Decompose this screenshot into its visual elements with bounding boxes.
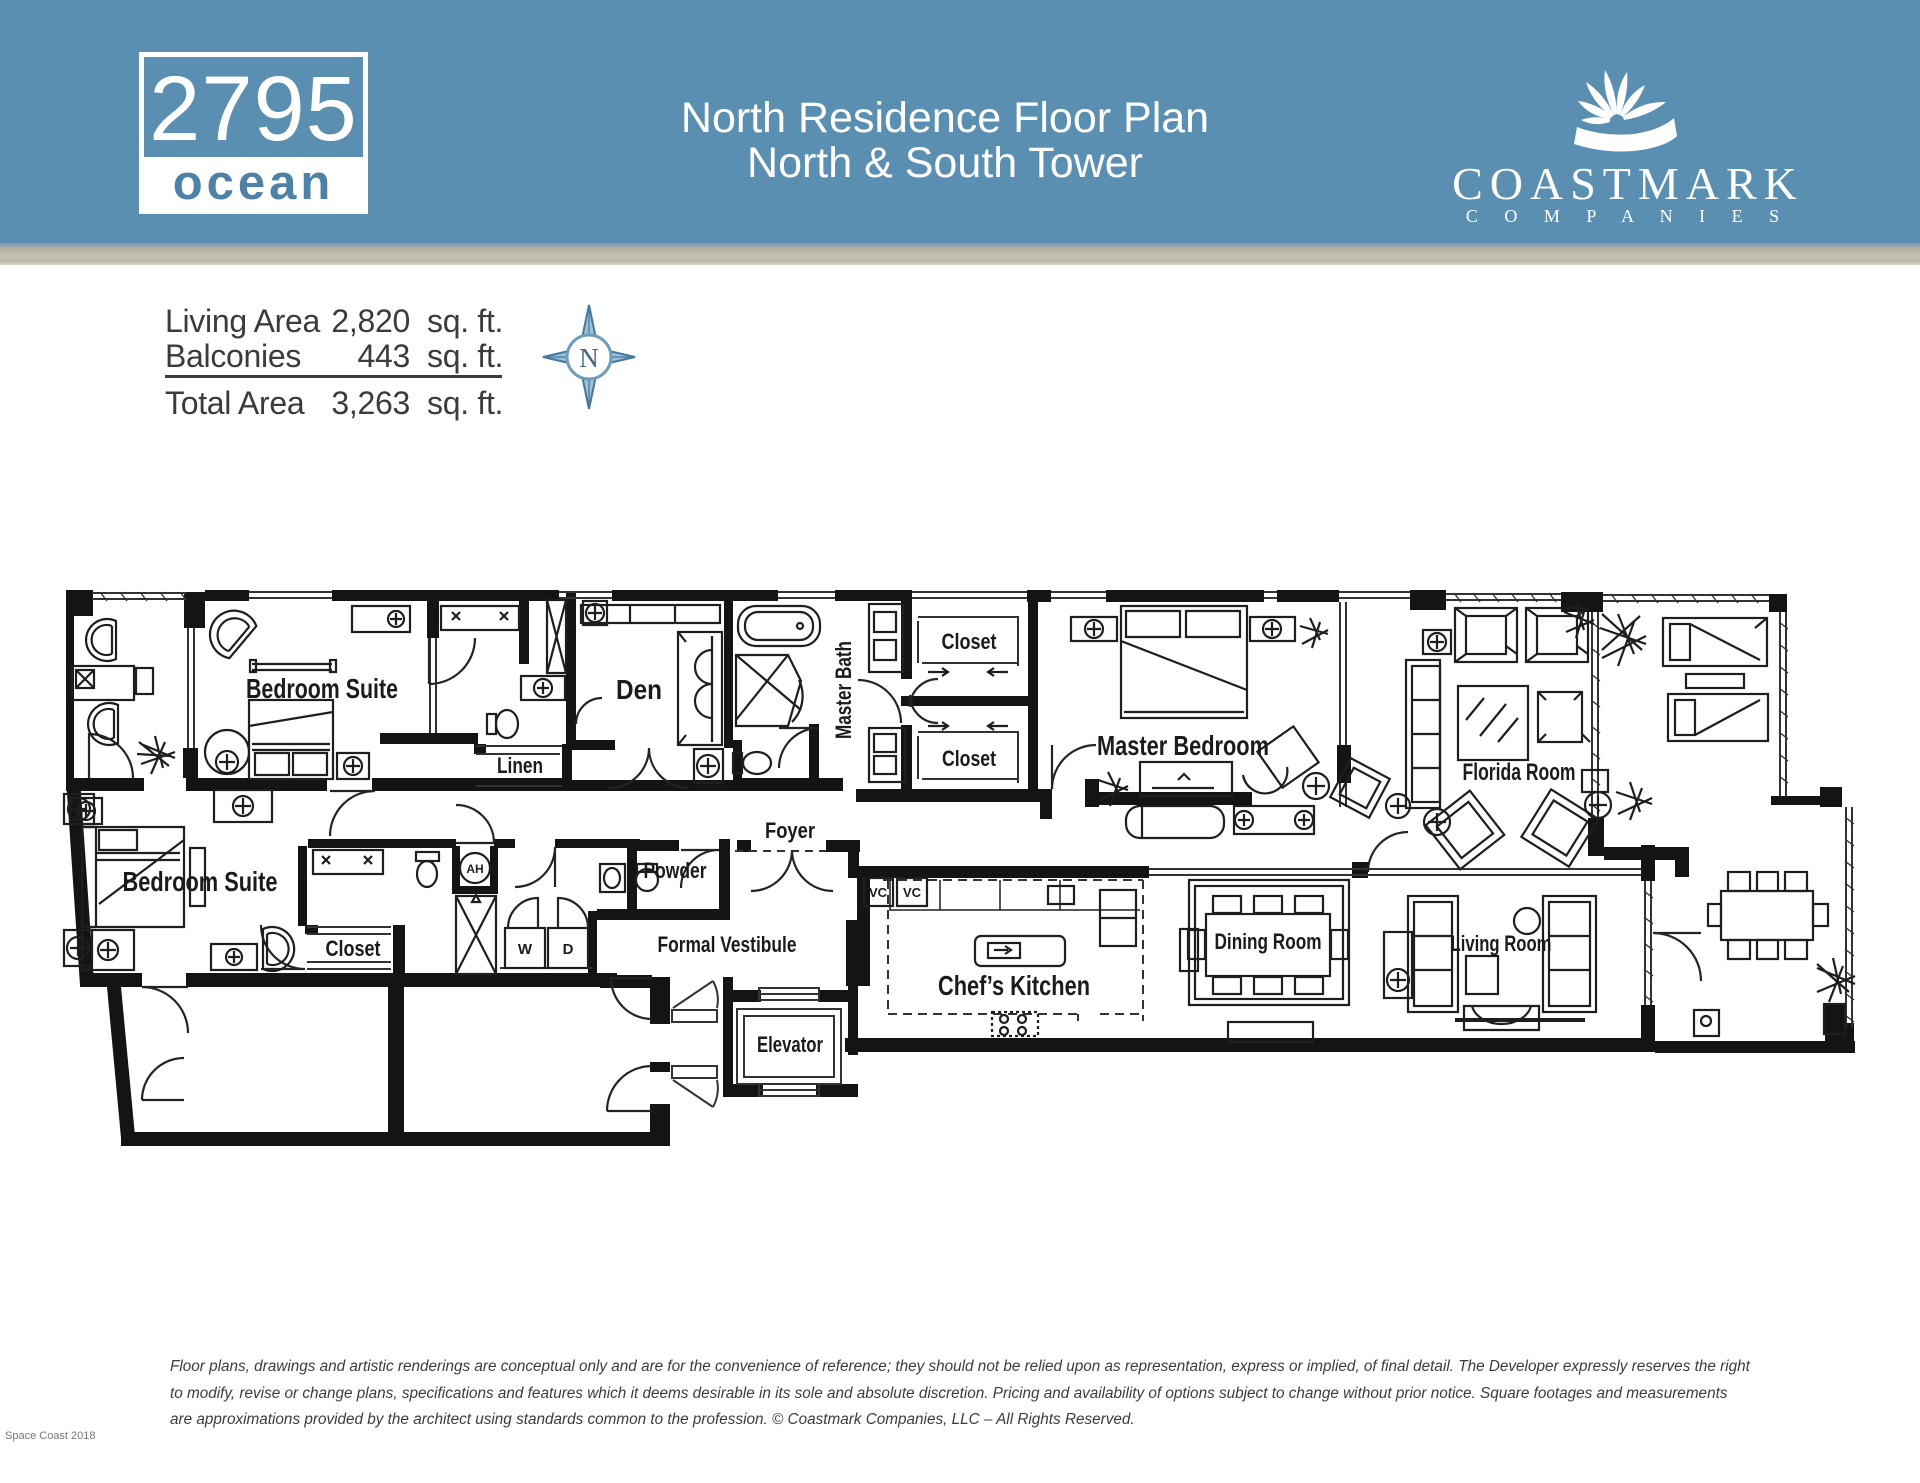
svg-text:Bedroom Suite: Bedroom Suite bbox=[123, 866, 278, 897]
svg-text:Master Bath: Master Bath bbox=[831, 641, 856, 739]
svg-text:Elevator: Elevator bbox=[757, 1032, 823, 1057]
svg-text:Closet: Closet bbox=[942, 629, 998, 654]
svg-text:Chef’s Kitchen: Chef’s Kitchen bbox=[938, 970, 1090, 1001]
svg-text:VC: VC bbox=[903, 885, 922, 900]
svg-text:Formal Vestibule: Formal Vestibule bbox=[658, 932, 797, 957]
svg-text:Living Room: Living Room bbox=[1451, 931, 1552, 956]
svg-text:Foyer: Foyer bbox=[765, 818, 815, 843]
svg-text:AH: AH bbox=[466, 862, 483, 876]
svg-text:Dining Room: Dining Room bbox=[1215, 929, 1322, 954]
svg-text:Closet: Closet bbox=[942, 746, 997, 771]
svg-text:Linen: Linen bbox=[497, 753, 543, 778]
svg-text:Master Bedroom: Master Bedroom bbox=[1097, 730, 1269, 761]
svg-text:Closet: Closet bbox=[326, 936, 382, 961]
svg-text:Bedroom Suite: Bedroom Suite bbox=[246, 673, 398, 704]
svg-text:Den: Den bbox=[616, 674, 662, 705]
svg-text:D: D bbox=[563, 941, 574, 958]
svg-text:W: W bbox=[518, 941, 533, 958]
svg-text:Florida Room: Florida Room bbox=[1463, 759, 1576, 786]
svg-text:VC: VC bbox=[869, 885, 888, 900]
svg-text:Powder: Powder bbox=[644, 858, 707, 883]
